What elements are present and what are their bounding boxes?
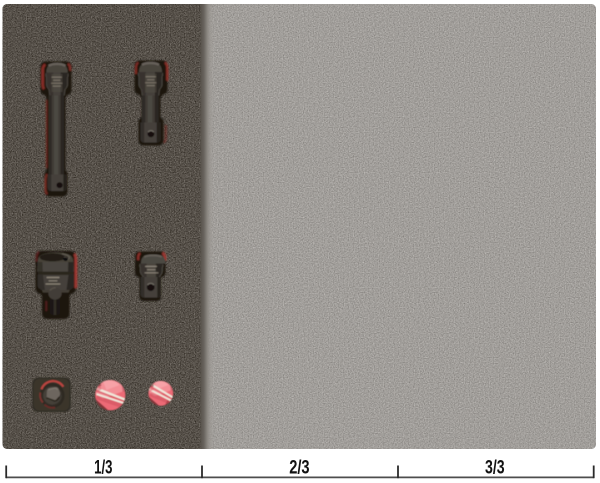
svg-text:1/3: 1/3 — [94, 457, 112, 479]
svg-text:2/3: 2/3 — [289, 457, 310, 479]
svg-text:3/3: 3/3 — [485, 457, 505, 479]
